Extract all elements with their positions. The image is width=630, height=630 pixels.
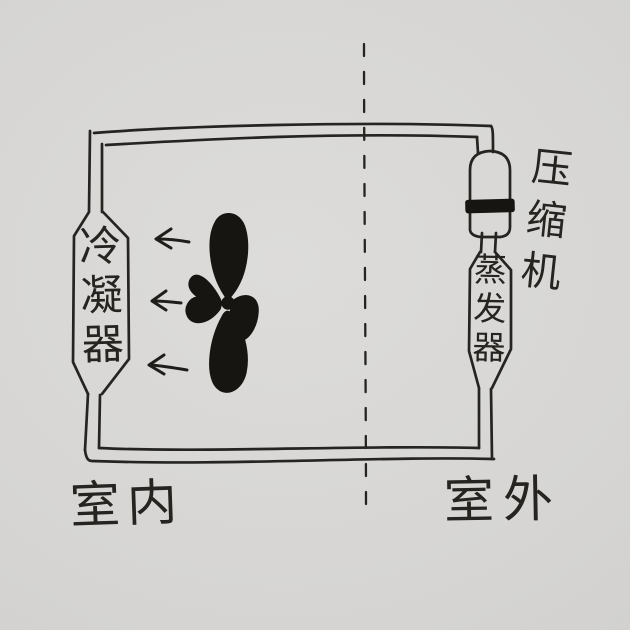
left-arrow-icon bbox=[149, 355, 187, 374]
airflow-arrows bbox=[149, 229, 189, 374]
outdoor-label: 室外 bbox=[444, 473, 563, 528]
compressor-shape bbox=[466, 151, 514, 237]
pipe-loop bbox=[85, 124, 496, 462]
fan-icon bbox=[186, 214, 258, 392]
evaporator-label: 蒸发器 bbox=[468, 252, 505, 370]
condenser-label: 冷凝器 bbox=[74, 223, 122, 371]
left-arrow-icon bbox=[156, 229, 189, 248]
sketch-canvas: 冷凝器 压缩机 蒸发器 室内 室外 bbox=[0, 0, 630, 630]
compressor-piston-band bbox=[466, 199, 514, 212]
indoor-label: 室内 bbox=[69, 476, 185, 532]
partition-dashed-line bbox=[364, 44, 366, 514]
left-arrow-icon bbox=[152, 291, 181, 310]
